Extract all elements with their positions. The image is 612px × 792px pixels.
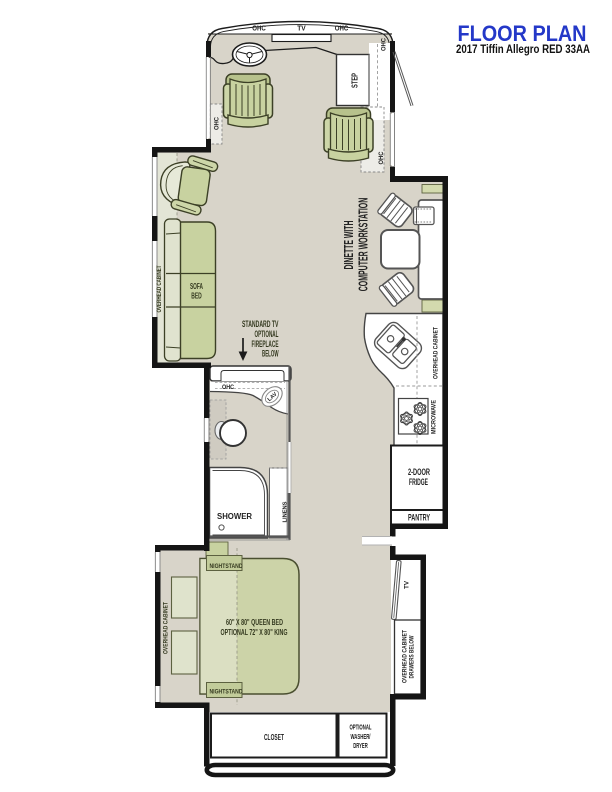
svg-text:FIREPLACE: FIREPLACE: [252, 339, 279, 349]
svg-text:CLOSET: CLOSET: [264, 733, 284, 742]
svg-text:FLOOR PLAN: FLOOR PLAN: [458, 21, 587, 46]
svg-text:SHOWER: SHOWER: [217, 512, 252, 521]
svg-text:STEP: STEP: [351, 73, 360, 88]
svg-text:OPTIONAL: OPTIONAL: [255, 329, 279, 339]
svg-text:DRAWERS BELOW: DRAWERS BELOW: [409, 635, 416, 678]
svg-text:COMPUTER WORKSTATION: COMPUTER WORKSTATION: [356, 198, 371, 292]
svg-text:STANDARD TV: STANDARD TV: [242, 319, 279, 329]
svg-text:OHC: OHC: [380, 38, 387, 51]
svg-text:FRIDGE: FRIDGE: [409, 477, 428, 487]
svg-text:NIGHTSTAND: NIGHTSTAND: [210, 563, 243, 570]
svg-text:OHC: OHC: [378, 151, 385, 164]
svg-text:WASHER/: WASHER/: [351, 732, 372, 741]
svg-text:DRYER: DRYER: [353, 741, 368, 750]
svg-text:OHC: OHC: [222, 384, 234, 391]
svg-text:OVERHEAD CABINET: OVERHEAD CABINET: [156, 265, 163, 312]
svg-text:PANTRY: PANTRY: [408, 513, 430, 523]
svg-text:OHC: OHC: [252, 26, 266, 33]
svg-text:BELOW: BELOW: [262, 348, 279, 358]
svg-text:2017 Tiffin Allegro RED 33AA: 2017 Tiffin Allegro RED 33AA: [456, 44, 590, 56]
svg-text:SOFA: SOFA: [190, 282, 203, 291]
svg-text:TV: TV: [297, 26, 306, 33]
svg-text:NIGHTSTAND: NIGHTSTAND: [210, 689, 243, 696]
svg-text:MICROWAVE: MICROWAVE: [431, 399, 438, 434]
svg-text:OVERHEAD CABINET: OVERHEAD CABINET: [162, 602, 169, 654]
svg-text:OHC: OHC: [335, 26, 349, 33]
svg-text:2-DOOR: 2-DOOR: [408, 467, 430, 477]
svg-text:OPTIONAL: OPTIONAL: [350, 723, 372, 732]
svg-text:OVERHEAD CABINET: OVERHEAD CABINET: [433, 327, 440, 379]
svg-text:OPTIONAL 72" X 80" KING: OPTIONAL 72" X 80" KING: [221, 628, 288, 637]
svg-text:OHC: OHC: [213, 117, 220, 130]
svg-text:TV: TV: [404, 581, 410, 589]
svg-text:60" X 80" QUEEN BED: 60" X 80" QUEEN BED: [226, 618, 283, 627]
svg-text:DINETTE WITH: DINETTE WITH: [341, 221, 356, 270]
svg-text:LINENS: LINENS: [283, 501, 289, 522]
svg-text:BED: BED: [191, 291, 202, 300]
